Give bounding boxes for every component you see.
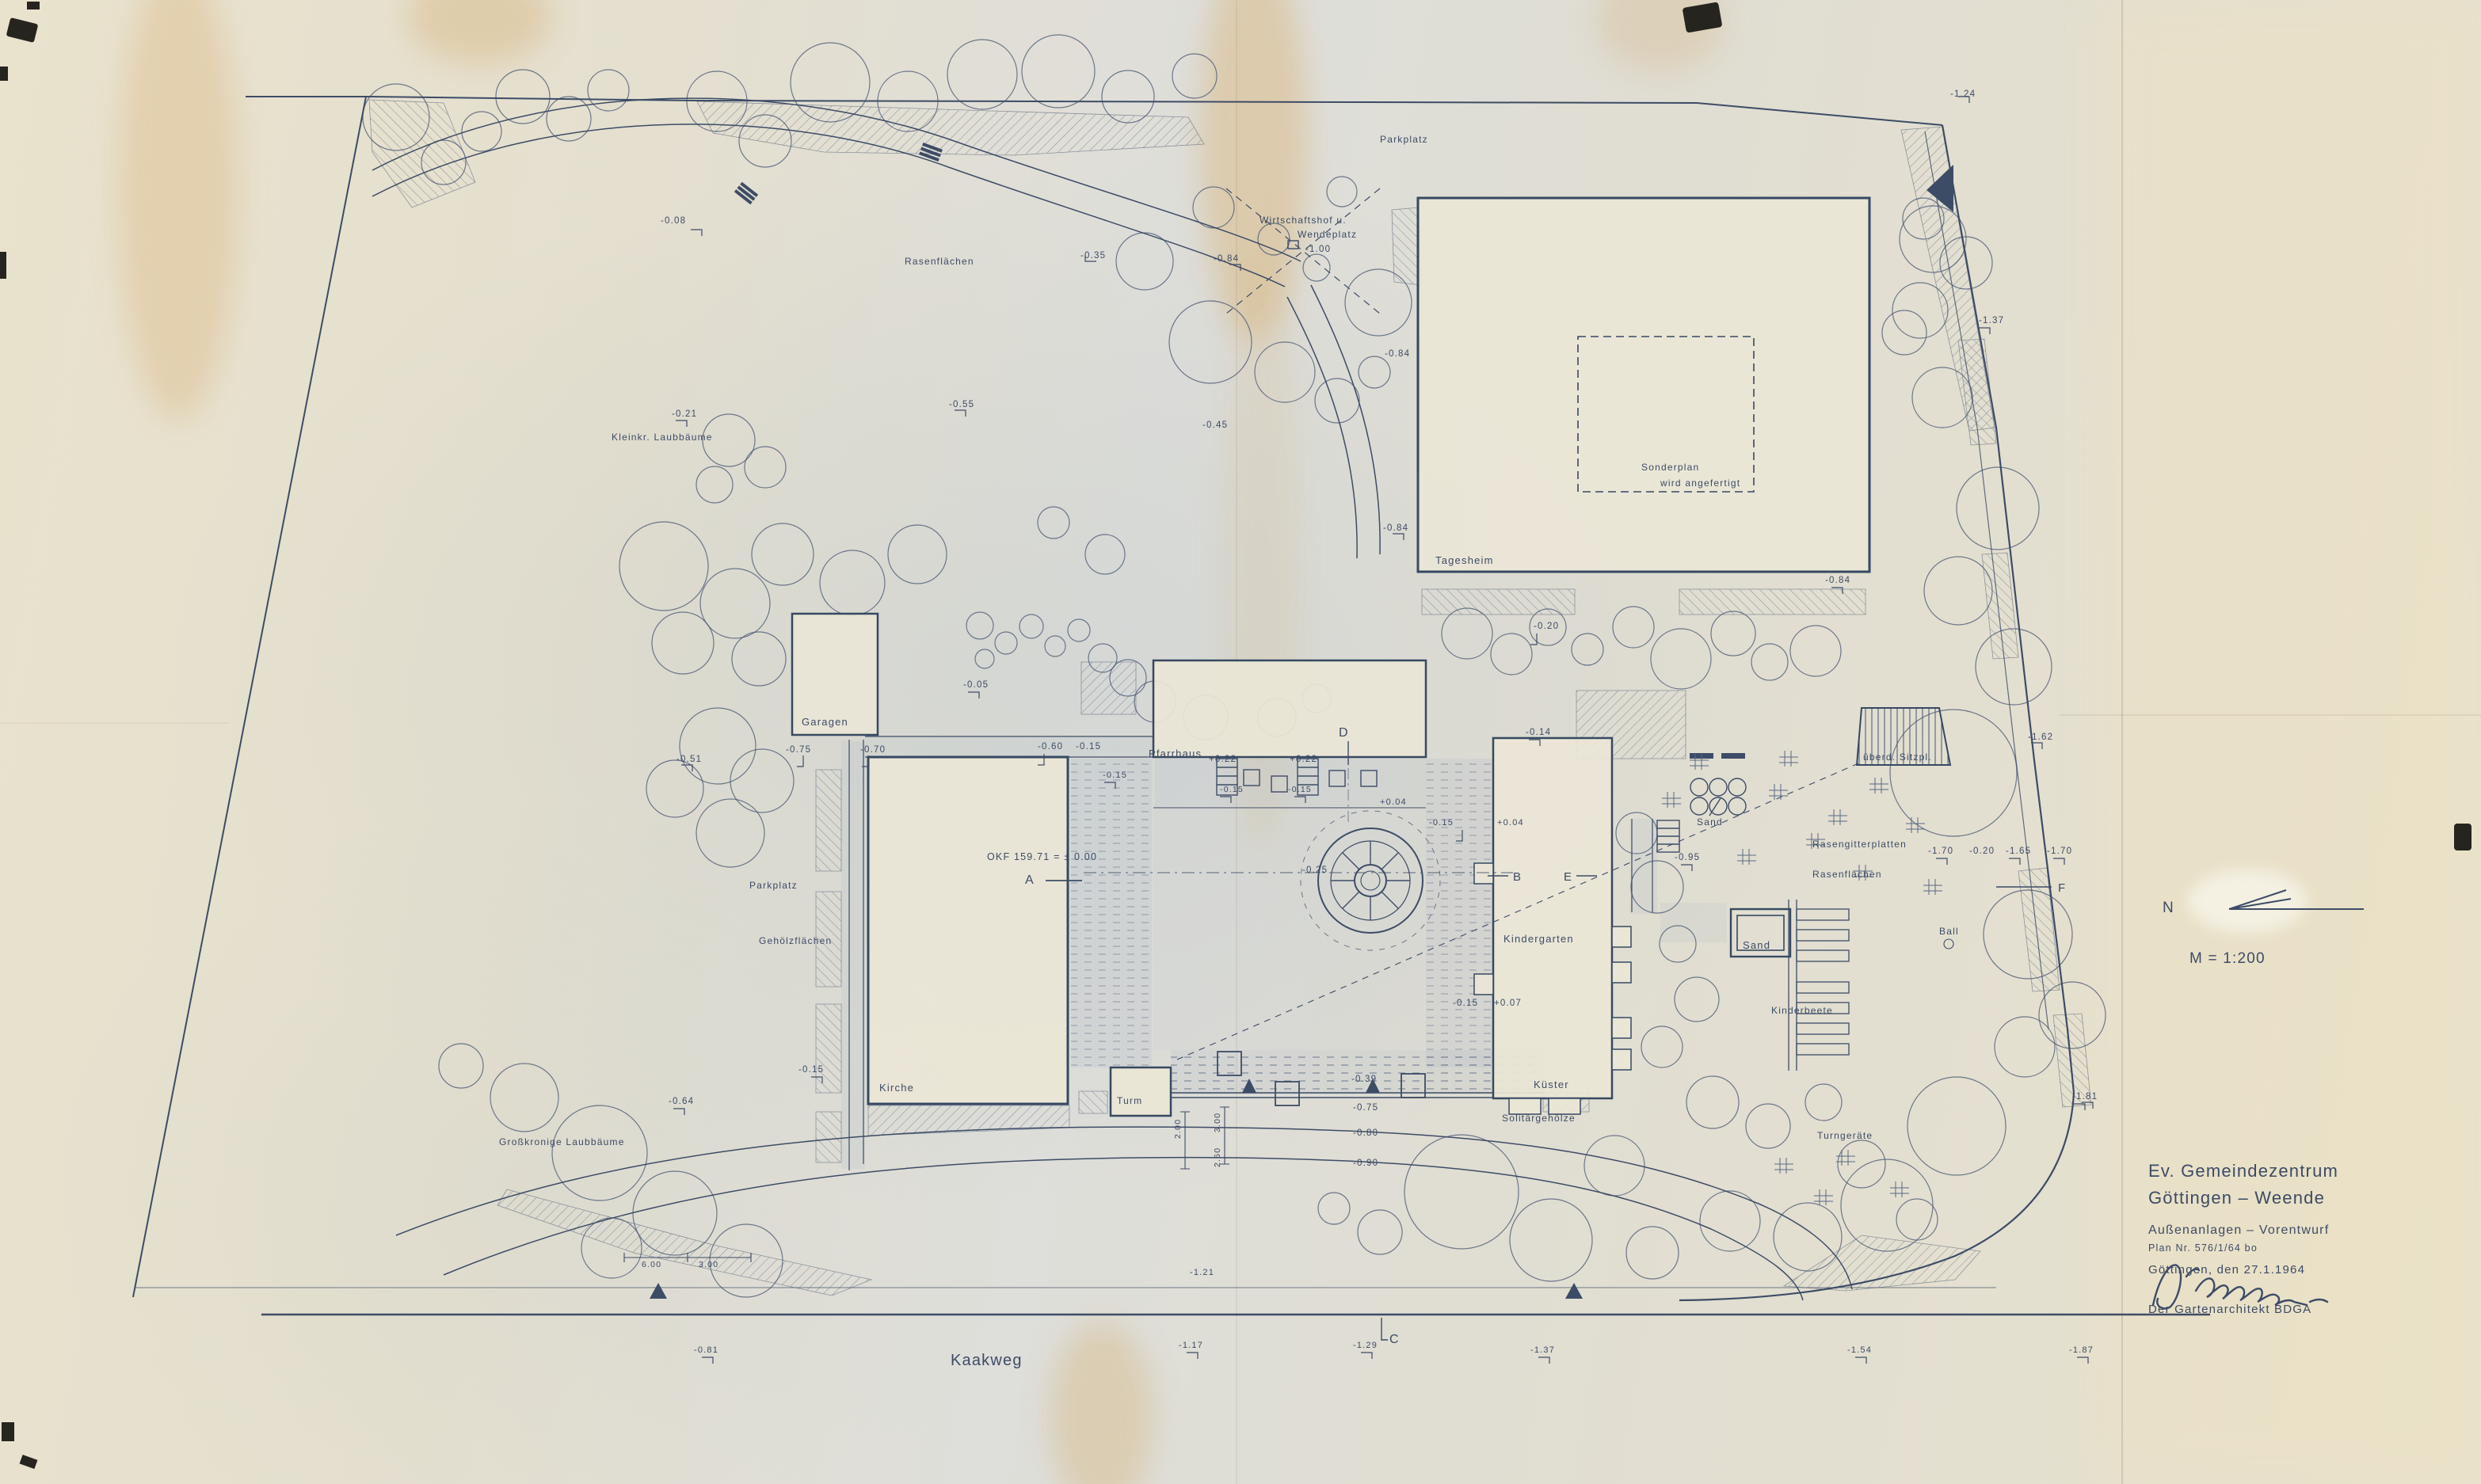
plan-label: Parkplatz	[749, 880, 798, 891]
grass-tuft	[1906, 817, 1925, 833]
plan-label: +0.22	[1209, 755, 1237, 764]
tree-symbol	[588, 70, 629, 111]
plan-label: 3.00	[699, 1260, 718, 1269]
plan-label: -1.65	[2006, 847, 2031, 856]
elevation-tick	[691, 230, 702, 236]
tree-symbol	[995, 632, 1017, 654]
tree-symbol	[496, 70, 550, 124]
plan-label: Kaakweg	[951, 1352, 1023, 1369]
shrub-area	[868, 1105, 1069, 1136]
plan-label: -1.81	[2072, 1092, 2098, 1102]
tree-symbol	[1675, 977, 1719, 1022]
tree-symbol	[1957, 467, 2039, 550]
shrub-area	[369, 100, 475, 207]
plan-label: -0.15	[1429, 818, 1454, 828]
shrub-area	[1679, 589, 1866, 615]
wendeplatz-cross	[1226, 188, 1380, 314]
elevation-tick	[1187, 1353, 1198, 1359]
plan-subtitle: Außenanlagen – Vorentwurf	[2148, 1223, 2329, 1237]
plan-label: -0.15	[1076, 742, 1101, 752]
tree-symbol	[1038, 507, 1069, 538]
tree-symbol	[1068, 619, 1090, 641]
grass-tuft	[1662, 792, 1681, 808]
tree-symbol	[646, 760, 703, 817]
plan-label: Sand	[1743, 939, 1770, 951]
grass-tuft	[1923, 879, 1942, 895]
plan-label: -0.84	[1214, 254, 1239, 264]
tree-symbol	[1327, 177, 1357, 207]
plan-label: Solitärgehölze	[1502, 1113, 1576, 1124]
tree-symbol	[1626, 1227, 1679, 1279]
plan-label: -0.75	[786, 745, 811, 755]
plan-label: -0.14	[1526, 728, 1551, 737]
plan-label: -1.00	[1305, 245, 1331, 254]
plan-label: -0.25	[1302, 866, 1328, 875]
sand-play-circles	[1690, 778, 1746, 816]
tree-symbol	[1172, 54, 1217, 98]
plan-label: OKF 159.71 = ± 0.00	[987, 851, 1097, 862]
shrub-area	[1081, 662, 1136, 714]
plan-label: -0.20	[1969, 847, 1995, 856]
plan-label: -1.70	[2047, 847, 2072, 856]
plan-label: -0.80	[1353, 1128, 1378, 1138]
plan-label: -1.70	[1928, 847, 1953, 856]
plan-label: Küster	[1534, 1079, 1569, 1090]
plan-label: B	[1513, 870, 1522, 884]
plan-label: Rasengitterplatten	[1812, 839, 1907, 850]
tree-symbol	[1907, 1077, 2006, 1175]
tree-symbol	[1838, 1140, 1885, 1188]
building-kirche	[868, 757, 1068, 1104]
tree-symbol	[552, 1105, 647, 1201]
plan-label: +0.22	[1290, 755, 1317, 764]
grass-tuft	[1828, 809, 1847, 825]
site-plan-drawing: N M = 1:200 Ev. Gemeindezentrum Göttinge…	[0, 0, 2481, 1484]
tree-symbol	[696, 799, 764, 867]
shrub-area	[816, 770, 841, 871]
plan-label: -0.05	[963, 680, 989, 690]
plan-label: -0.90	[1353, 1159, 1378, 1168]
tree-symbol	[1255, 342, 1315, 402]
elevation-tick	[1855, 1357, 1866, 1364]
plan-label: Gehölzflächen	[759, 935, 832, 946]
plan-label: C	[1389, 1333, 1400, 1346]
plan-label: überd. Sitzpl.	[1863, 752, 1932, 763]
shrub-area	[816, 1004, 841, 1093]
plan-label: -0.45	[1202, 420, 1228, 430]
tree-symbol	[1404, 1135, 1519, 1249]
plan-label: 3.00	[1213, 1113, 1222, 1132]
plan-label: Garagen	[802, 716, 848, 728]
tree-symbol	[1491, 634, 1532, 675]
tree-symbol	[619, 522, 708, 611]
plan-label: -1.37	[1979, 316, 2004, 325]
plan-label: -0.75	[1353, 1103, 1378, 1113]
elevation-tick	[1936, 858, 1947, 865]
tree-symbol	[1019, 615, 1043, 638]
shrub-area	[816, 1112, 841, 1162]
plan-label: +0.04	[1497, 818, 1524, 828]
plan-label: A	[1025, 873, 1035, 887]
tree-symbol	[1841, 1159, 1933, 1251]
plan-label: Sonderplan	[1641, 462, 1699, 473]
plan-label: E	[1564, 870, 1572, 884]
tree-symbol	[1359, 356, 1390, 388]
plan-label: 2.60	[1213, 1147, 1222, 1167]
elevation-tick	[955, 410, 966, 417]
tree-symbol	[1746, 1104, 1790, 1148]
tree-symbol	[652, 612, 714, 674]
elevation-tick	[797, 755, 803, 767]
plan-label: +0.07	[1494, 999, 1522, 1008]
tree-symbol	[975, 649, 994, 668]
tree-symbol	[1022, 35, 1095, 108]
tree-symbol	[1345, 269, 1412, 336]
plan-label: -0.15	[1220, 785, 1244, 794]
tree-symbol	[752, 523, 814, 585]
plan-label: -0.39	[1351, 1075, 1377, 1084]
grass-tuft	[1737, 849, 1756, 865]
plan-label: Rasenflächen	[905, 256, 974, 267]
grass-tuft	[1779, 751, 1798, 767]
plan-label: Kindergarten	[1503, 933, 1574, 945]
plan-label: 2.00	[1173, 1119, 1183, 1139]
tree-symbol	[1510, 1199, 1592, 1281]
plan-label: -0.20	[1534, 622, 1559, 631]
building-tagesheim	[1418, 198, 1869, 572]
plan-label: -0.35	[1080, 251, 1106, 261]
tree-symbol	[1045, 636, 1065, 656]
elevation-tick	[1361, 1353, 1372, 1359]
tree-symbol	[1116, 233, 1173, 290]
tree-symbol	[1169, 301, 1252, 383]
plan-label: 6.00	[642, 1260, 661, 1269]
plan-label: -1.37	[1530, 1345, 1555, 1355]
elevation-tick	[1979, 328, 1990, 334]
scale-label: M = 1:200	[2189, 950, 2266, 967]
tree-symbol	[1258, 223, 1290, 255]
plan-label: -1.21	[1190, 1268, 1214, 1277]
north-arrow-icon	[2229, 890, 2364, 909]
elevation-tick	[1538, 1357, 1549, 1364]
tree-symbol	[1318, 1193, 1350, 1224]
plan-label: Wirtschaftshof u.	[1260, 215, 1347, 226]
shrub-area	[1079, 1091, 1107, 1113]
plan-label: -0.64	[669, 1097, 694, 1106]
elevation-tick	[1393, 534, 1404, 540]
plan-label: -1.54	[1847, 1345, 1872, 1355]
tree-symbol	[1358, 1210, 1402, 1254]
project-title-line1: Ev. Gemeindezentrum	[2148, 1161, 2338, 1181]
plan-label: -1.17	[1179, 1341, 1203, 1350]
project-title-line2: Göttingen – Weende	[2148, 1188, 2325, 1208]
tree-symbol	[1751, 644, 1788, 680]
elevation-tick	[2009, 858, 2020, 865]
elevation-tick	[2077, 1357, 2088, 1364]
tree-symbol	[1686, 1076, 1739, 1128]
tree-symbol	[1641, 1026, 1683, 1067]
tree-symbol	[966, 612, 993, 639]
elevation-tick	[968, 692, 979, 698]
tree-symbol	[1711, 611, 1755, 656]
plan-label: Tagesheim	[1435, 554, 1494, 566]
tree-symbol	[547, 97, 591, 141]
plan-label: Ball	[1939, 926, 1959, 937]
tree-symbol	[700, 569, 770, 638]
plan-label: -0.84	[1383, 523, 1408, 533]
tree-symbol	[1995, 1017, 2055, 1077]
plan-label: Turngeräte	[1817, 1130, 1873, 1141]
plan-label: +0.04	[1380, 797, 1407, 807]
plan-label: -0.51	[676, 755, 702, 764]
tree-symbol	[1584, 1136, 1644, 1196]
plan-label: Parkplatz	[1380, 134, 1428, 145]
tree-symbol	[1303, 254, 1330, 281]
plan-label: Pfarrhaus	[1149, 748, 1202, 759]
tree-symbol	[1613, 607, 1654, 648]
plan-label: Kirche	[879, 1082, 914, 1094]
plan-label: wird angefertigt	[1660, 478, 1740, 489]
tree-symbol	[1790, 626, 1841, 676]
grass-tuft	[1769, 784, 1788, 800]
tree-symbol	[1572, 634, 1603, 665]
plan-label: -1.87	[2069, 1345, 2094, 1355]
plan-label: Großkronige Laubbäume	[499, 1136, 625, 1147]
shrub-area	[1422, 589, 1575, 615]
tree-symbol	[888, 525, 947, 584]
plan-label: -0.84	[1825, 576, 1850, 585]
plan-label: -0.15	[1453, 999, 1478, 1008]
architect-credit: Der Gartenarchitekt BDGA	[2148, 1303, 2311, 1316]
plan-label: -0.55	[949, 400, 974, 409]
tree-symbol	[1805, 1084, 1842, 1121]
tree-symbol	[1085, 535, 1125, 574]
plan-label: -0.84	[1385, 349, 1410, 359]
tree-symbol	[680, 708, 756, 784]
plan-label: Turm	[1117, 1095, 1142, 1106]
plan-number: Plan Nr. 576/1/64 bo	[2148, 1242, 2258, 1254]
plan-label: -1.24	[1950, 89, 1976, 99]
tree-symbol	[1774, 1203, 1842, 1271]
title-block: Ev. Gemeindezentrum Göttingen – Weende A…	[2148, 1161, 2338, 1316]
tree-symbol	[696, 466, 733, 503]
plan-label: F	[2058, 881, 2066, 895]
plan-label: -0.15	[798, 1065, 824, 1075]
shrub-area	[1392, 207, 1421, 285]
tree-symbol	[439, 1044, 483, 1088]
plan-label: -0.21	[672, 409, 697, 419]
tree-symbol	[745, 447, 786, 488]
building-kindergarten	[1493, 738, 1612, 1098]
plan-label: -0.81	[694, 1345, 718, 1355]
shrub-area	[1784, 1235, 1980, 1291]
elevation-tick	[676, 420, 687, 427]
building-pfarrhaus	[1153, 660, 1426, 757]
plan-label: -0.08	[661, 216, 686, 226]
plan-label: Rasenflächen	[1812, 869, 1882, 880]
tree-symbol	[732, 632, 786, 686]
elevation-tick	[673, 1109, 684, 1115]
north-and-scale: N M = 1:200	[2163, 890, 2364, 967]
tree-symbol	[730, 749, 794, 812]
plan-label: Wendeplatz	[1298, 229, 1357, 240]
elevation-tick	[702, 1357, 713, 1364]
plan-label: Kleinkr. Laubbäume	[612, 432, 713, 443]
tree-symbol	[1896, 1199, 1938, 1240]
grass-tuft	[1814, 1189, 1833, 1205]
tree-symbol	[1102, 70, 1154, 123]
tree-symbol	[1651, 629, 1711, 689]
site-plan-sheet: N M = 1:200 Ev. Gemeindezentrum Göttinge…	[0, 0, 2481, 1484]
tree-symbol	[1442, 608, 1492, 659]
tree-symbol	[1924, 557, 1992, 625]
kinderbeete-frames	[1789, 900, 1849, 1071]
north-label: N	[2163, 900, 2174, 916]
tree-symbol	[820, 550, 885, 615]
grass-tuft	[1869, 778, 1888, 793]
elevation-tick	[2053, 858, 2064, 865]
plan-label: Sand	[1697, 816, 1723, 828]
building-turm	[1111, 1067, 1171, 1116]
plan-label: D	[1339, 726, 1349, 740]
plan-label: -0.60	[1038, 742, 1063, 752]
plan-label: -0.15	[1103, 771, 1127, 780]
shrub-area	[497, 1189, 871, 1296]
tree-symbol	[947, 40, 1017, 109]
plan-label: -0.15	[1288, 785, 1312, 794]
plan-label: -1.29	[1353, 1341, 1378, 1350]
plan-label: -1.62	[2028, 732, 2053, 742]
plan-label: Kinderbeete	[1771, 1005, 1833, 1016]
section-line-c	[1382, 1318, 1388, 1340]
plan-label: -0.95	[1675, 853, 1700, 862]
grass-tuft	[1774, 1158, 1793, 1174]
plan-label: -0.70	[860, 745, 886, 755]
elevation-tick	[1681, 865, 1692, 871]
grass-tuft	[1890, 1181, 1909, 1197]
tree-symbol	[490, 1064, 558, 1132]
